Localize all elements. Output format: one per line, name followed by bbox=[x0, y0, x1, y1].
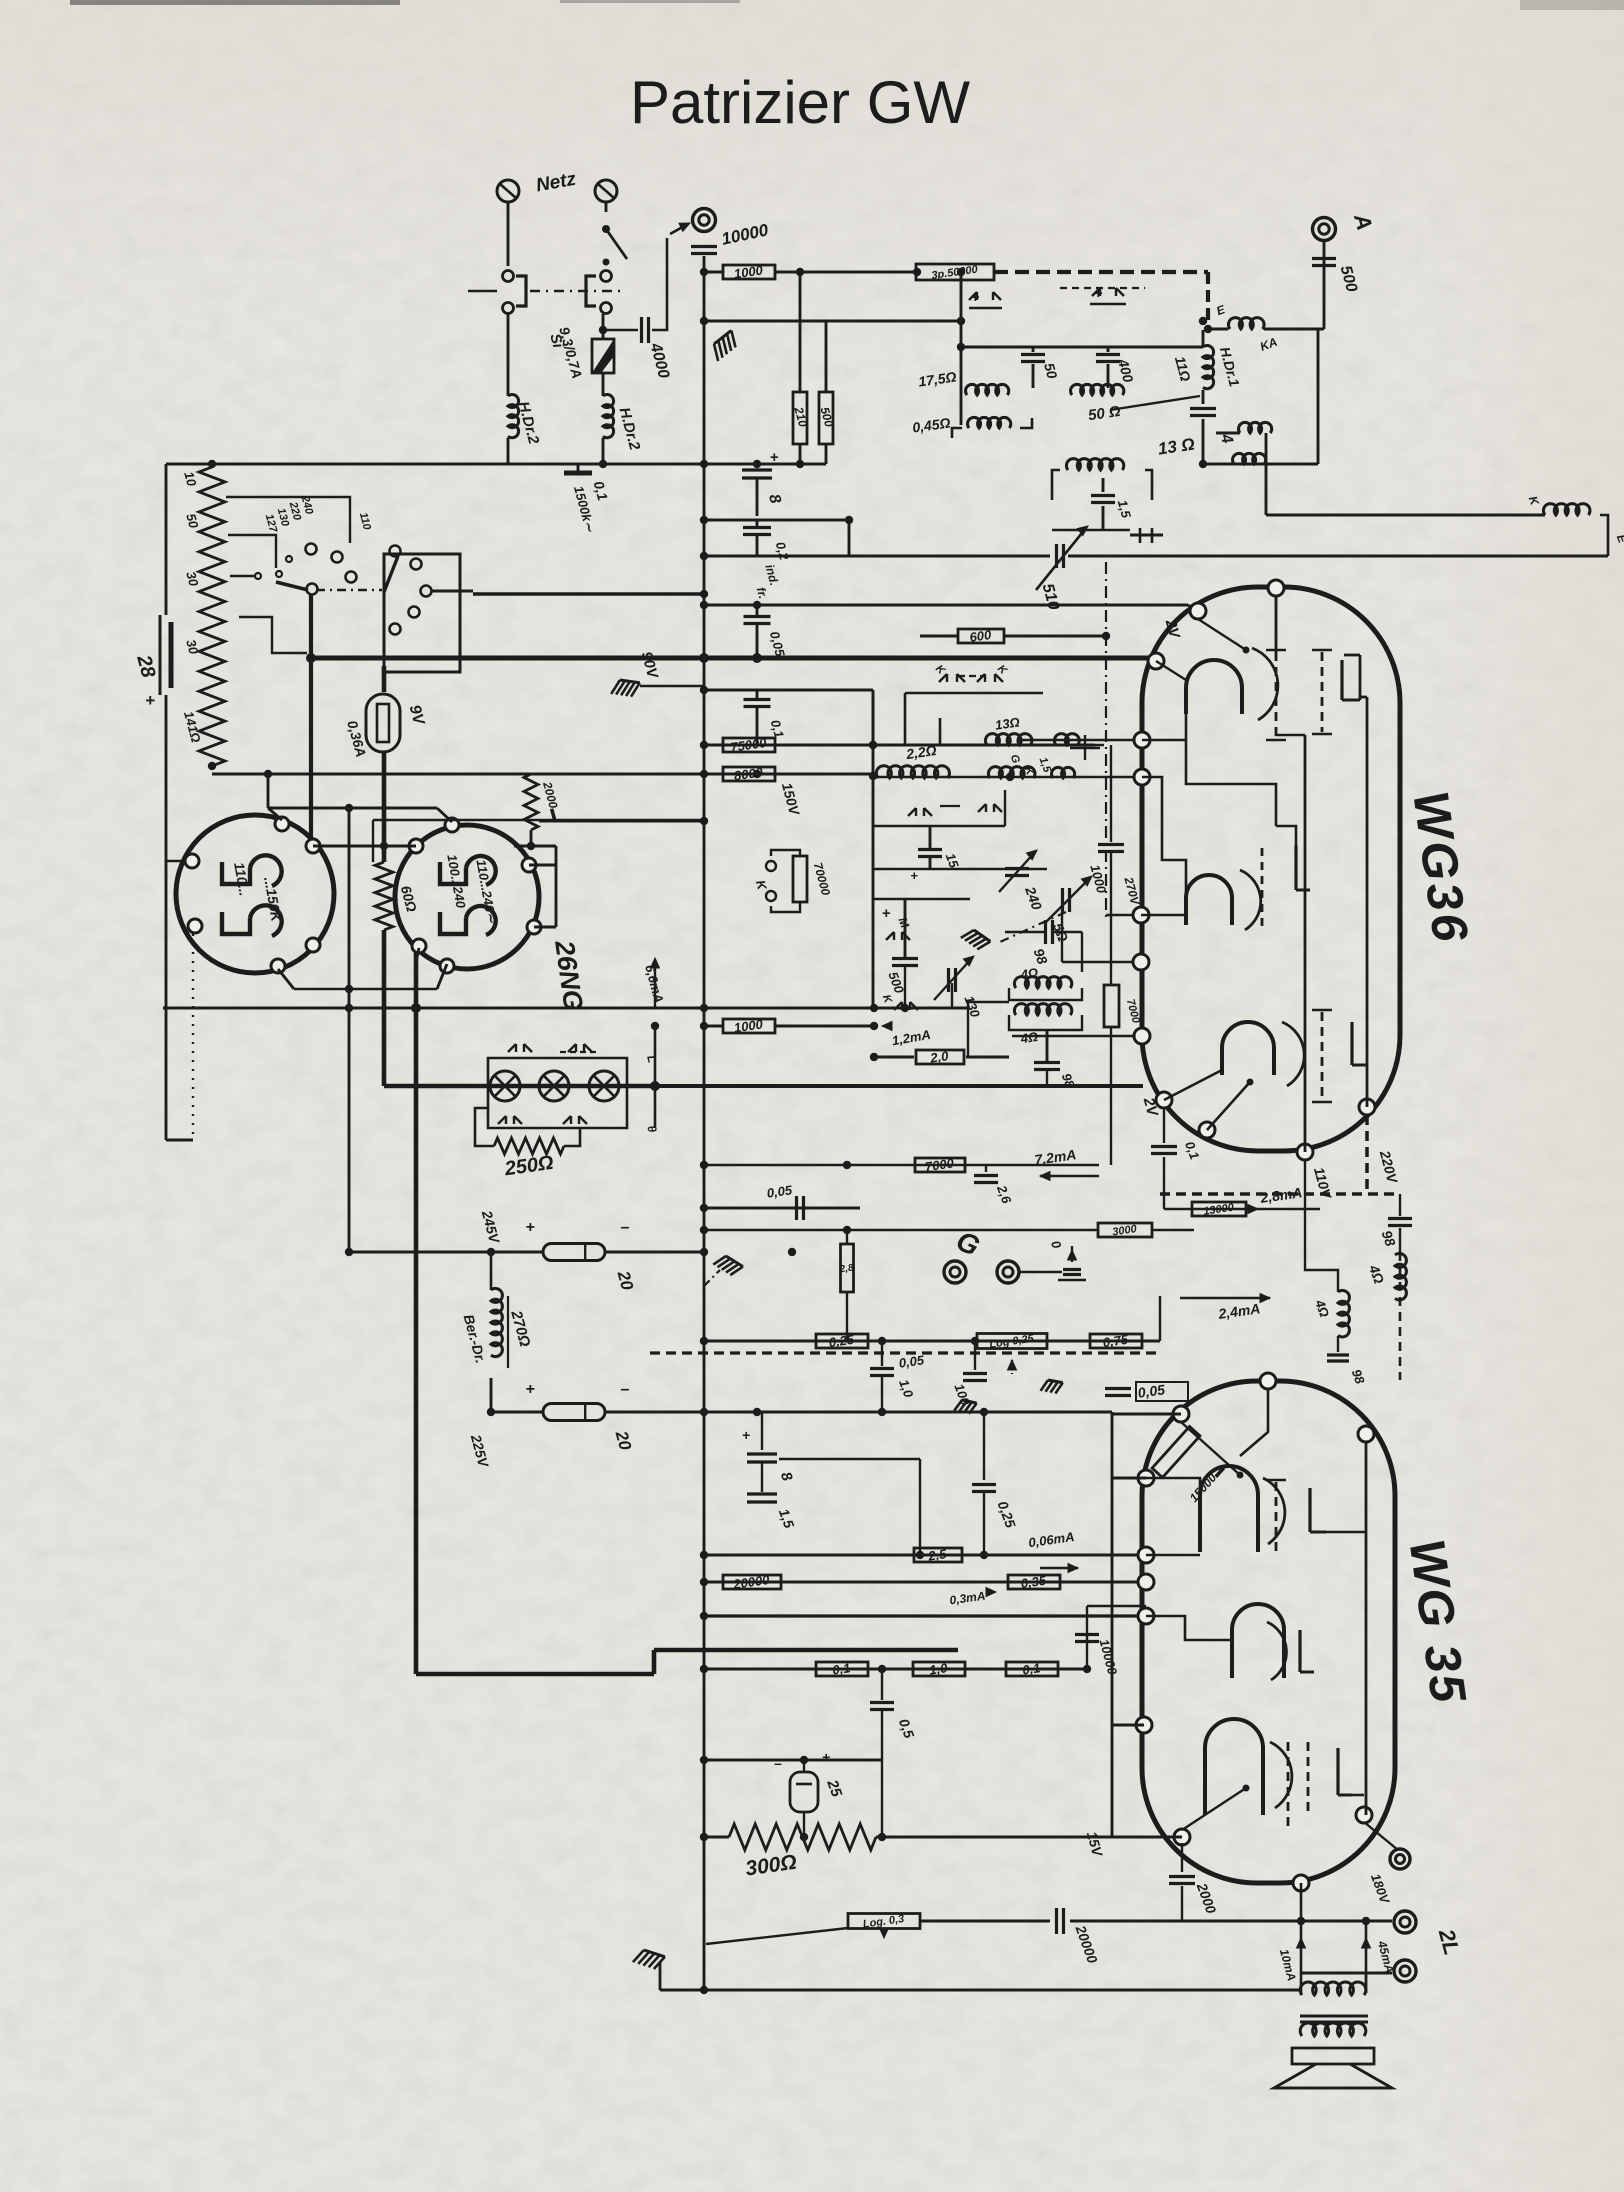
svg-text:+: + bbox=[742, 1427, 750, 1443]
svg-text:0,1: 0,1 bbox=[1021, 1660, 1041, 1677]
svg-text:–: – bbox=[621, 1219, 630, 1236]
svg-text:–: – bbox=[621, 1381, 630, 1398]
svg-text:+: + bbox=[971, 289, 980, 306]
svg-text:+: + bbox=[525, 1381, 534, 1398]
svg-text:+: + bbox=[822, 1749, 830, 1765]
svg-text:2,0: 2,0 bbox=[928, 1048, 950, 1066]
svg-text:1,0: 1,0 bbox=[928, 1660, 949, 1677]
svg-text:+: + bbox=[910, 868, 918, 883]
svg-text:2,5: 2,5 bbox=[926, 1546, 948, 1564]
svg-text:2,8: 2,8 bbox=[838, 1262, 855, 1275]
svg-text:+: + bbox=[882, 905, 891, 922]
svg-text:0,1: 0,1 bbox=[831, 1660, 851, 1677]
svg-text:Patrizier GW: Patrizier GW bbox=[630, 69, 970, 136]
svg-text:+: + bbox=[770, 449, 779, 466]
svg-text:–: – bbox=[774, 1755, 782, 1771]
svg-text:600: 600 bbox=[969, 627, 993, 645]
svg-text:4Ω: 4Ω bbox=[1019, 1029, 1039, 1046]
svg-text:4Ω: 4Ω bbox=[1019, 965, 1039, 982]
svg-text:+: + bbox=[145, 691, 155, 710]
svg-text:+: + bbox=[525, 1219, 534, 1236]
